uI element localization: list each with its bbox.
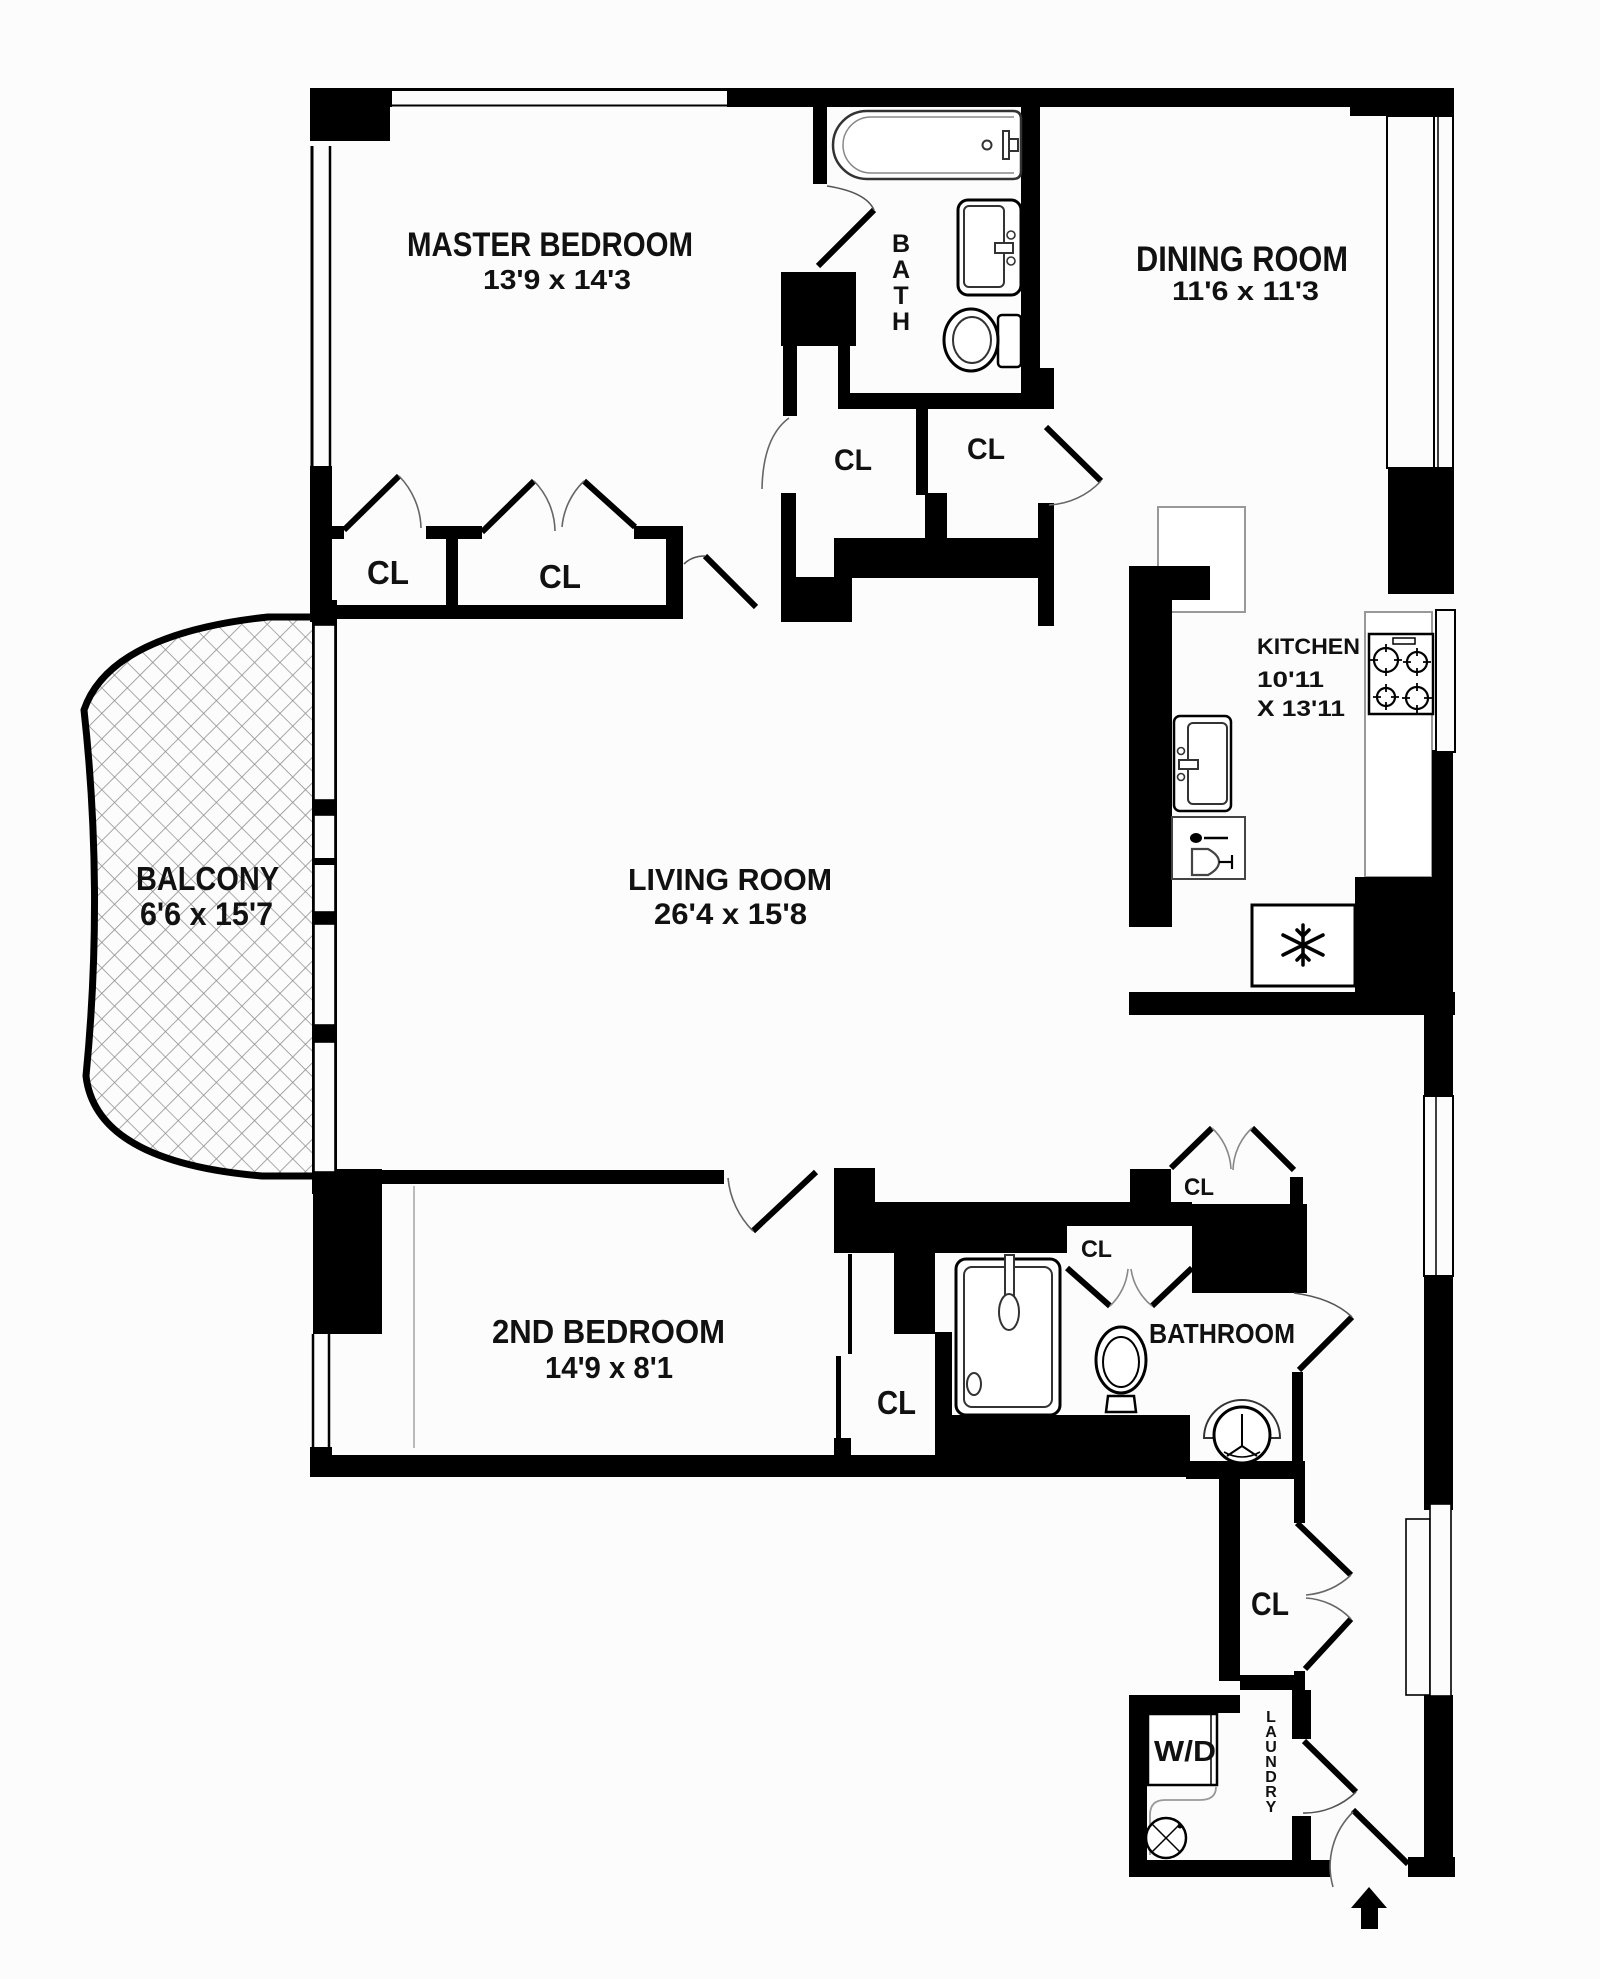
svg-text:14'9 x 8'1: 14'9 x 8'1 [545,1350,673,1385]
svg-text:11'6 x 11'3: 11'6 x 11'3 [1172,276,1319,306]
svg-text:T: T [893,282,908,310]
svg-text:MASTER BEDROOM: MASTER BEDROOM [407,226,693,264]
svg-text:B: B [892,230,910,258]
svg-text:W/D: W/D [1154,1736,1216,1768]
svg-text:KITCHEN: KITCHEN [1257,634,1360,659]
svg-text:26'4 x 15'8: 26'4 x 15'8 [654,898,807,931]
svg-text:LIVING ROOM: LIVING ROOM [628,862,832,897]
svg-text:CL: CL [367,554,409,591]
svg-text:CL: CL [539,558,581,595]
svg-text:CL: CL [1184,1174,1214,1201]
svg-text:H: H [892,308,910,336]
svg-text:10'11: 10'11 [1257,667,1324,692]
svg-text:X 13'11: X 13'11 [1257,696,1345,721]
svg-text:2ND BEDROOM: 2ND BEDROOM [492,1313,725,1350]
svg-text:BALCONY: BALCONY [136,860,279,897]
svg-text:BATHROOM: BATHROOM [1149,1318,1295,1349]
svg-text:13'9 x 14'3: 13'9 x 14'3 [483,264,631,295]
svg-text:DINING ROOM: DINING ROOM [1136,240,1348,279]
svg-text:6'6 x 15'7: 6'6 x 15'7 [140,896,273,932]
svg-text:A: A [892,256,910,284]
svg-text:CL: CL [967,433,1005,466]
svg-text:CL: CL [877,1384,916,1421]
svg-text:Y: Y [1266,1799,1277,1816]
svg-text:CL: CL [834,444,872,477]
svg-text:CL: CL [1251,1586,1289,1622]
svg-text:CL: CL [1081,1236,1112,1263]
